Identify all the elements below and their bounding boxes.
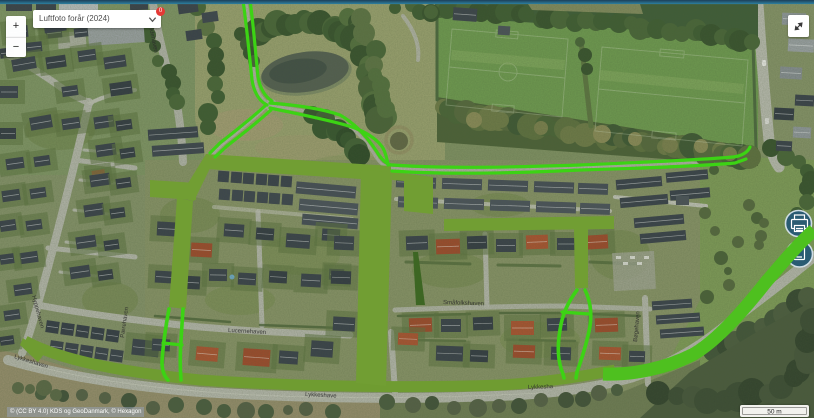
svg-text:Småfolkshaven: Småfolkshaven	[443, 299, 484, 307]
svg-text:Lykkesha: Lykkesha	[528, 384, 554, 391]
svg-text:50 m: 50 m	[767, 409, 781, 416]
